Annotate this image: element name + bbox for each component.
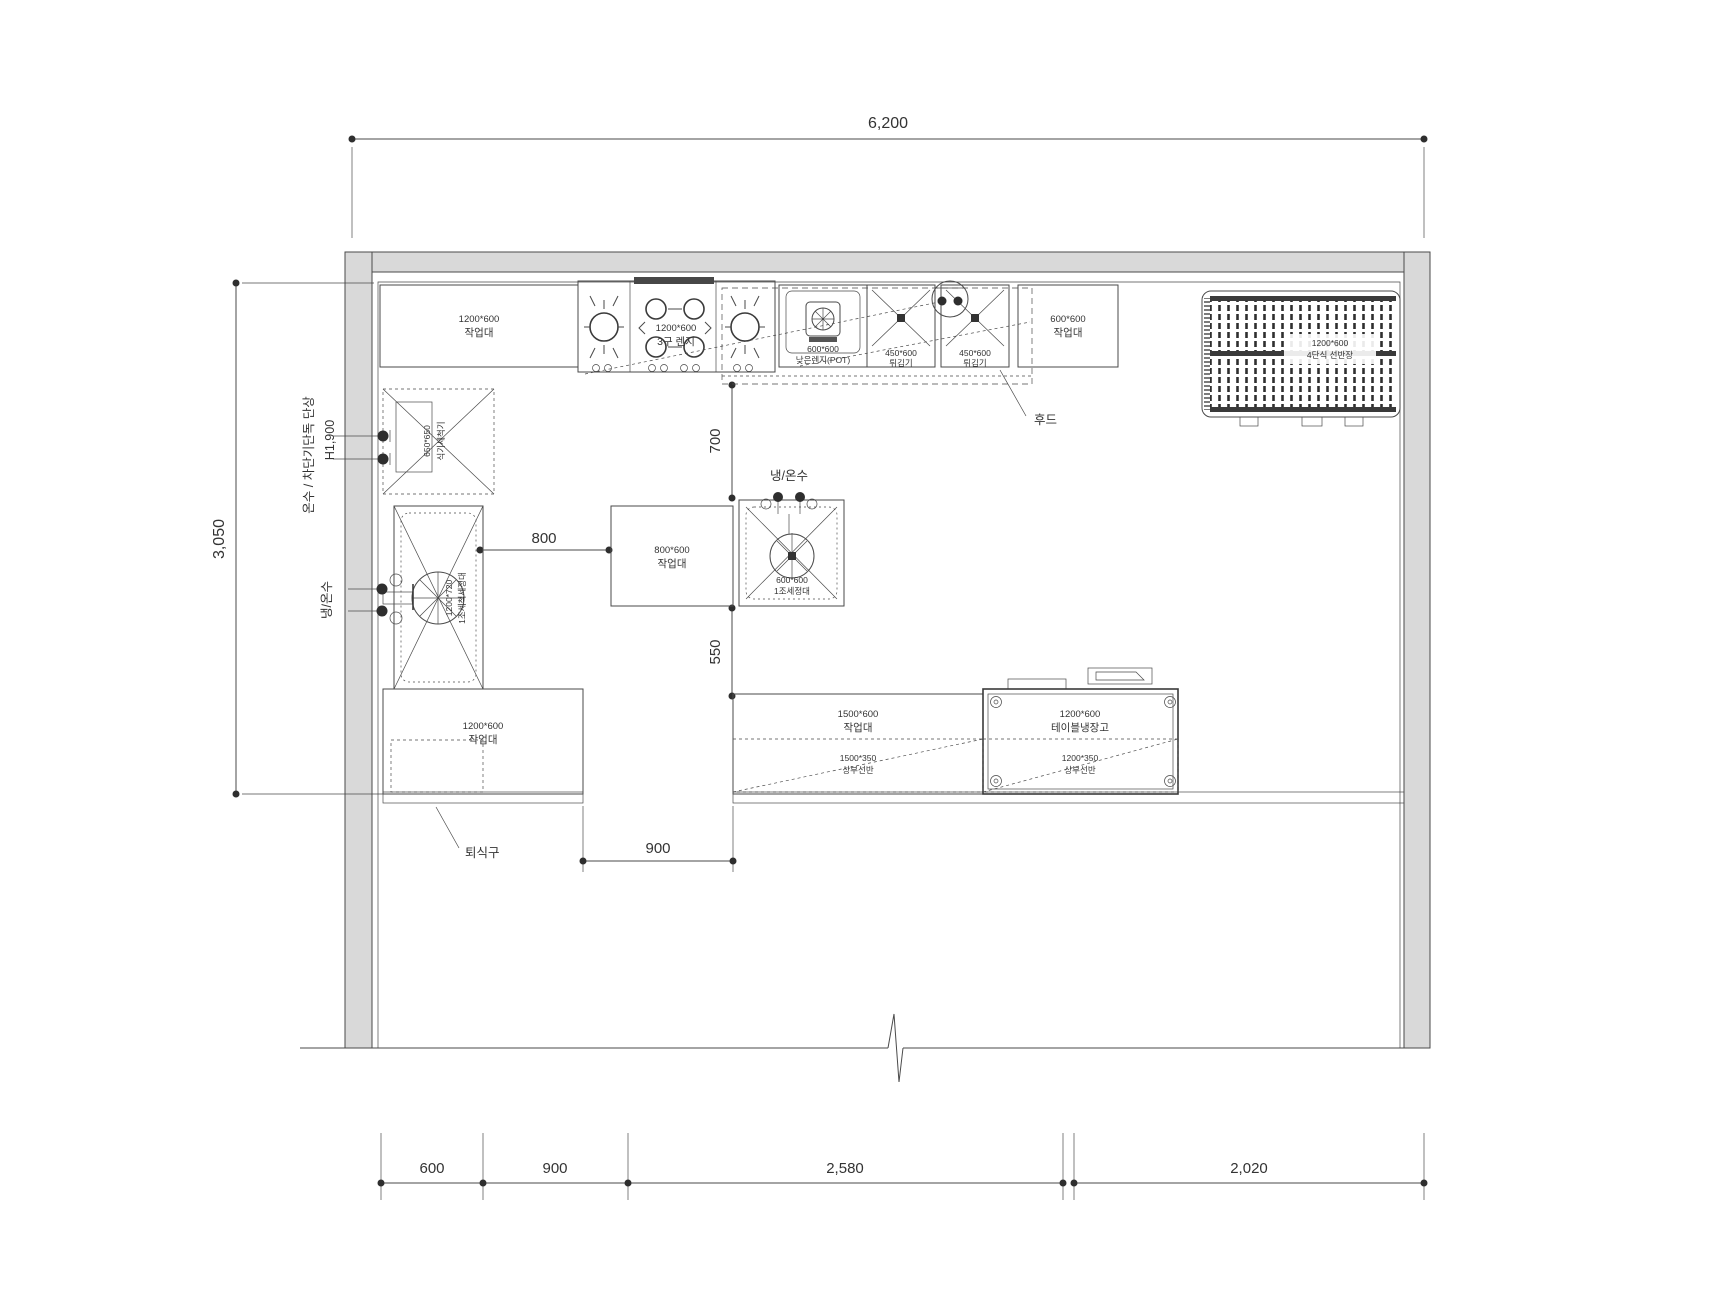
fryer-drain-icon xyxy=(971,314,979,322)
fryer-2: 450*600 튀김기 xyxy=(941,285,1009,368)
rack-comb xyxy=(1204,298,1210,410)
equip-size: 1200*600 xyxy=(1312,338,1349,348)
power-label: 온수 / 차단기단독 단상 xyxy=(302,396,316,514)
equip-size: 1200*600 xyxy=(656,323,697,334)
equip-size: 1200*720 xyxy=(444,580,454,617)
equip-size: 1200*600 xyxy=(459,314,500,325)
equip-name: 작업대 xyxy=(1054,326,1083,339)
equip-size: 1500*600 xyxy=(838,709,879,720)
dim-700: 700 xyxy=(707,428,724,453)
equip-size: 600*600 xyxy=(807,344,839,354)
dim-550: 550 xyxy=(707,639,724,664)
equip-size: 450*600 xyxy=(885,348,917,358)
wash-sink: 1200*720 1조세척세정대 xyxy=(383,506,483,689)
equip-name: 튀김기 xyxy=(889,358,912,368)
burner-large-right-icon xyxy=(725,296,765,358)
water-left-label: 냉/온수 xyxy=(320,581,334,619)
equip-size: 650*650 xyxy=(422,425,432,457)
equip-name: 튀김기 xyxy=(963,358,986,368)
equip-name: 테이블냉장고 xyxy=(1051,722,1109,734)
power-height-label: H1,900 xyxy=(323,420,337,460)
worktable-center: 800*600 작업대 xyxy=(611,506,733,606)
equip-size: 1500*350 xyxy=(840,753,877,763)
equip-name: 식기세척기 xyxy=(436,421,446,460)
worktable-bottom-left: 1200*600 작업대 xyxy=(383,689,583,794)
equip-name: 상부선반 xyxy=(842,765,873,775)
equip-size: 600*600 xyxy=(1050,314,1085,325)
equip-name: 작업대 xyxy=(844,721,873,734)
dim-900: 900 xyxy=(645,840,670,857)
equip-size: 800*600 xyxy=(654,545,689,556)
equip-size: 600*600 xyxy=(776,575,808,585)
equip-size: 1200*350 xyxy=(1062,753,1099,763)
hood-fan-icon xyxy=(932,281,968,317)
dim-overall-width: 6,200 xyxy=(868,115,908,132)
return-opening-label: 퇴식구 xyxy=(465,846,500,860)
burner-large-left-icon xyxy=(584,296,624,358)
wall-break-icon xyxy=(888,1014,903,1082)
range-vent-strip xyxy=(634,277,714,284)
equip-name: 4단식 선반장 xyxy=(1307,350,1353,360)
upper-shelf-1: 1500*350 상부선반 xyxy=(733,739,983,792)
equip-name: 1조세척세정대 xyxy=(457,572,467,624)
dimension-top: 6,200 xyxy=(349,115,1428,238)
worktable-top-left: 1200*600 작업대 xyxy=(380,285,578,367)
dim-900b: 900 xyxy=(542,1160,567,1177)
pot-burner-icon xyxy=(806,302,840,342)
dim-600: 600 xyxy=(419,1160,444,1177)
water-mid-label: 냉/온수 xyxy=(770,469,808,483)
equip-name: 작업대 xyxy=(658,557,687,570)
dimension-bottom: 600 900 2,580 2,020 xyxy=(378,1133,1428,1200)
sink-center: 600*600 1조세정대 xyxy=(739,492,844,606)
equip-name: 상부선반 xyxy=(1064,765,1095,775)
upper-shelf-2: 1200*350 상부선반 xyxy=(983,739,1178,792)
equip-name: 3구 렌지 xyxy=(657,336,695,348)
worktable-top-right: 600*600 작업대 xyxy=(1018,285,1118,367)
shelf-rack: 1200*600 4단식 선반장 xyxy=(1202,291,1400,426)
fryer-drain-icon xyxy=(897,314,905,322)
dimension-interior: 700 550 800 900 xyxy=(477,382,737,873)
return-opening-annotation: 퇴식구 xyxy=(436,807,500,860)
equip-name: 1조세정대 xyxy=(774,586,810,596)
refrigerator: 1200*600 테이블냉장고 1200*350 상부선반 xyxy=(983,668,1178,794)
dishwasher: 650*650 식기세척기 xyxy=(383,389,494,494)
hood-label: 후드 xyxy=(1034,413,1057,427)
dim-overall-depth: 3,050 xyxy=(211,519,228,559)
return-opening-hatch xyxy=(391,740,483,792)
kitchen-floor-plan: 6,200 3,050 700 550 800 900 60 xyxy=(0,0,1724,1296)
gas-range: 1200*600 3구 렌지 xyxy=(578,277,775,372)
equip-size: 1200*600 xyxy=(463,721,504,732)
dim-2020: 2,020 xyxy=(1230,1160,1268,1177)
fryer-1: 450*600 튀김기 xyxy=(867,285,935,368)
low-range-pot: 600*600 낮은렌지(POT) xyxy=(779,285,867,367)
dim-2580: 2,580 xyxy=(826,1160,864,1177)
equip-name: 낮은렌지(POT) xyxy=(796,355,851,365)
floor-plan-linework: 6,200 3,050 700 550 800 900 60 xyxy=(0,0,1724,1296)
equip-size: 1200*600 xyxy=(1060,709,1101,720)
equip-name: 작업대 xyxy=(465,326,494,339)
equip-size: 450*600 xyxy=(959,348,991,358)
dim-800: 800 xyxy=(531,530,556,547)
worktable-bottom: 1500*600 작업대 1500*350 상부선반 xyxy=(733,694,983,794)
